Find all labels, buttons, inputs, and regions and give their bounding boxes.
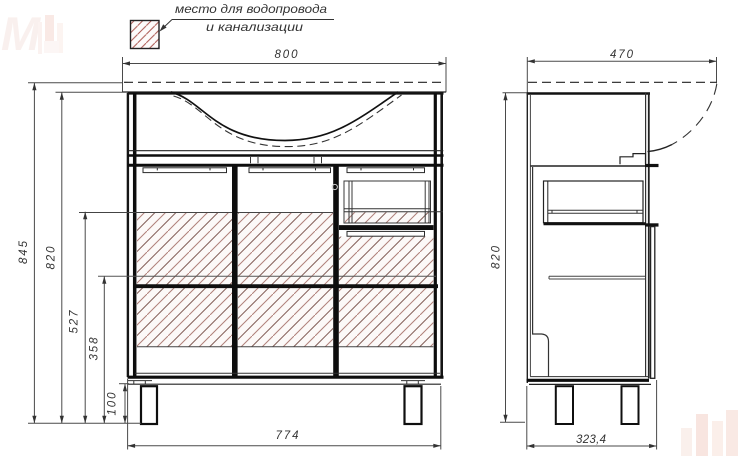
svg-text:820: 820: [46, 246, 58, 270]
svg-text:358: 358: [89, 337, 101, 361]
svg-text:470: 470: [610, 49, 634, 61]
svg-text:845: 845: [18, 240, 30, 264]
svg-text:323,4: 323,4: [576, 434, 606, 446]
svg-text:место для водопровода: место для водопровода: [175, 4, 327, 16]
svg-text:и канализации: и канализации: [206, 22, 304, 34]
svg-text:527: 527: [69, 310, 81, 334]
svg-text:800: 800: [275, 49, 299, 61]
svg-text:820: 820: [491, 245, 503, 269]
svg-text:M: M: [1, 7, 41, 60]
svg-text:100: 100: [107, 392, 119, 416]
svg-text:774: 774: [276, 430, 299, 442]
